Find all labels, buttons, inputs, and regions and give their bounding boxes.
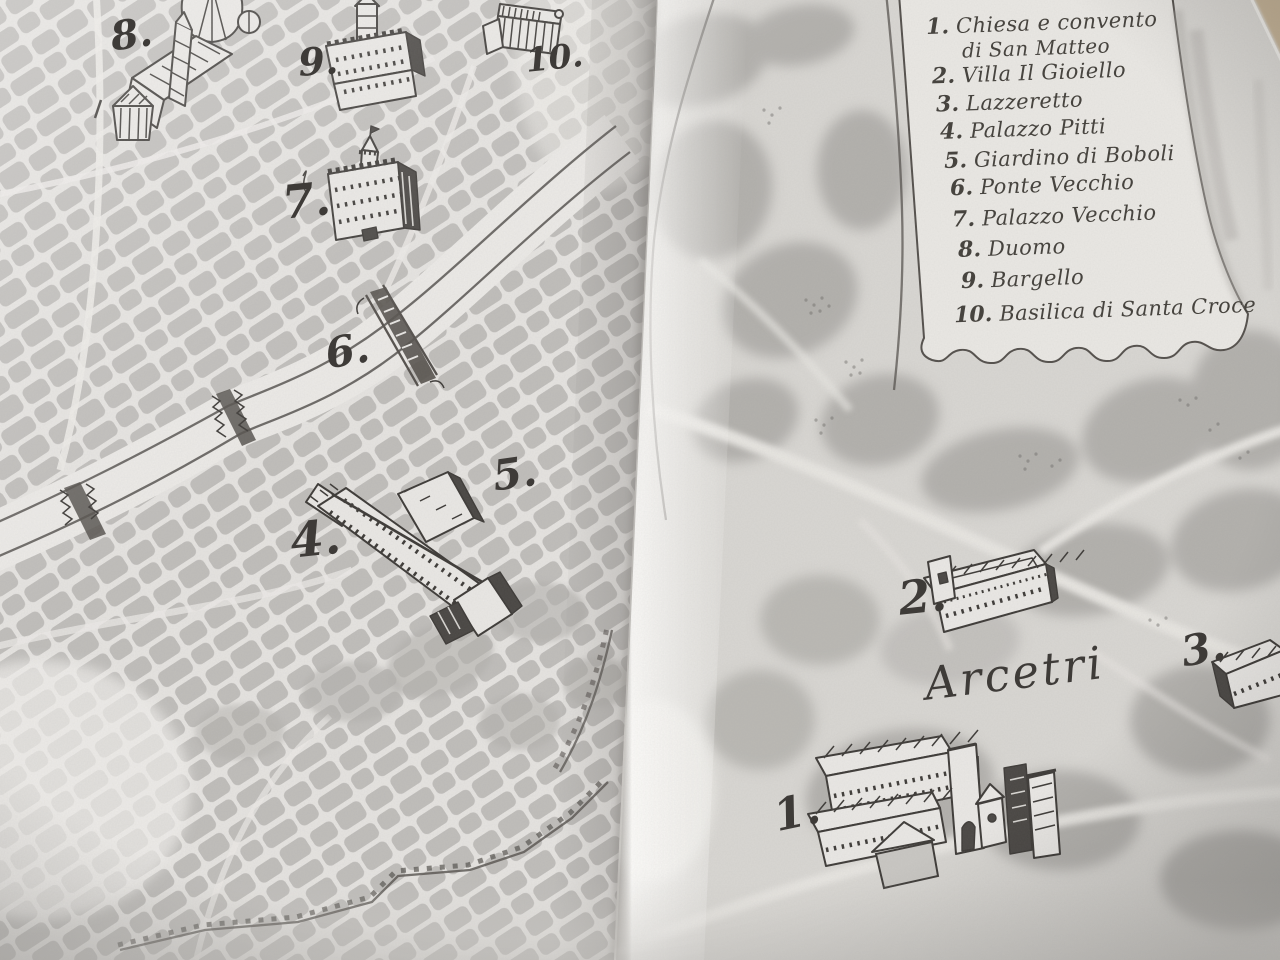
marker-palazzo-pitti: 4. bbox=[288, 513, 343, 566]
marker-santa-croce: 10. bbox=[524, 38, 585, 77]
marker-lazzeretto: 3. bbox=[1178, 624, 1228, 673]
legend-list: 1. Chiesa e convento di San Matteo 2. Vi… bbox=[896, 0, 1276, 380]
legend-item: 4. Palazzo Pitti bbox=[940, 113, 1107, 145]
legend-item: 8. Duomo bbox=[958, 233, 1066, 263]
legend-item: 9. Bargello bbox=[961, 264, 1085, 294]
marker-boboli: 5. bbox=[490, 450, 539, 498]
legend-item: 10. Basilica di Santa Croce bbox=[954, 292, 1257, 329]
legend-item: 3. Lazzeretto bbox=[936, 86, 1084, 117]
marker-ponte-vecchio: 6. bbox=[322, 326, 372, 375]
marker-duomo: 8. bbox=[108, 12, 155, 57]
legend-item: 7. Palazzo Vecchio bbox=[952, 199, 1157, 232]
marker-san-matteo: 1. bbox=[770, 786, 824, 839]
marker-bargello: 9. bbox=[297, 41, 339, 82]
legend-item: 2. Villa Il Gioiello bbox=[932, 57, 1127, 90]
legend-item: 6. Ponte Vecchio bbox=[950, 169, 1135, 201]
book-map-photo: 8. 9. 10. 7. 6. 5. 4. 2. 3. 1. Arcetri 1… bbox=[0, 0, 1280, 960]
marker-palazzo-vecchio: 7. bbox=[280, 175, 333, 226]
marker-villa-gioiello: 2. bbox=[896, 571, 949, 622]
legend-item: 5. Giardino di Boboli bbox=[944, 140, 1175, 174]
